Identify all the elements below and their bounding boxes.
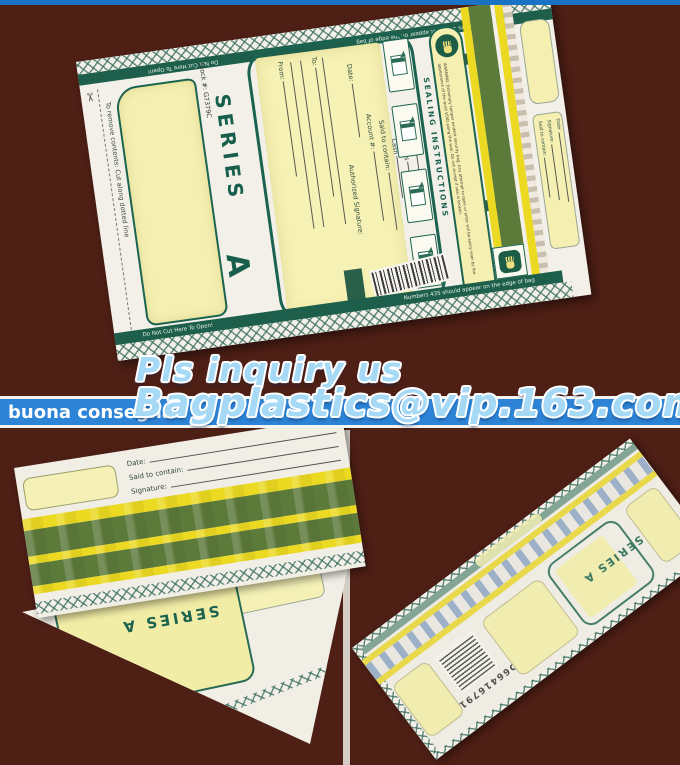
flap-signature-label: Signature:: [546, 120, 554, 144]
hand-icon-box: [492, 243, 528, 279]
flap-write-box: [519, 18, 560, 105]
scissors-icon: ✂: [82, 91, 97, 103]
flap-date-label: Date:: [555, 118, 562, 131]
hand-icon: [434, 33, 460, 59]
hand-icon: [498, 249, 523, 274]
back-write-box: [22, 464, 120, 511]
photo-deposit-bag-back: D66416791 SERIES A: [352, 439, 680, 760]
contact-email-text: Bagplastics@vip.163.com: [134, 381, 680, 425]
product-photo-collage: Numbers 123 must appear on the edge of b…: [0, 0, 680, 765]
series-word: SERIES: [210, 92, 255, 244]
flap-contain-label: Said to contain:: [537, 121, 547, 157]
photo-deposit-bag-front: Numbers 123 must appear on the edge of b…: [76, 0, 591, 361]
series-letter: A: [218, 251, 256, 279]
back-signature-label: Signature:: [131, 482, 168, 496]
top-blue-strip: [0, 0, 680, 5]
field-to-label: To:: [310, 56, 319, 66]
